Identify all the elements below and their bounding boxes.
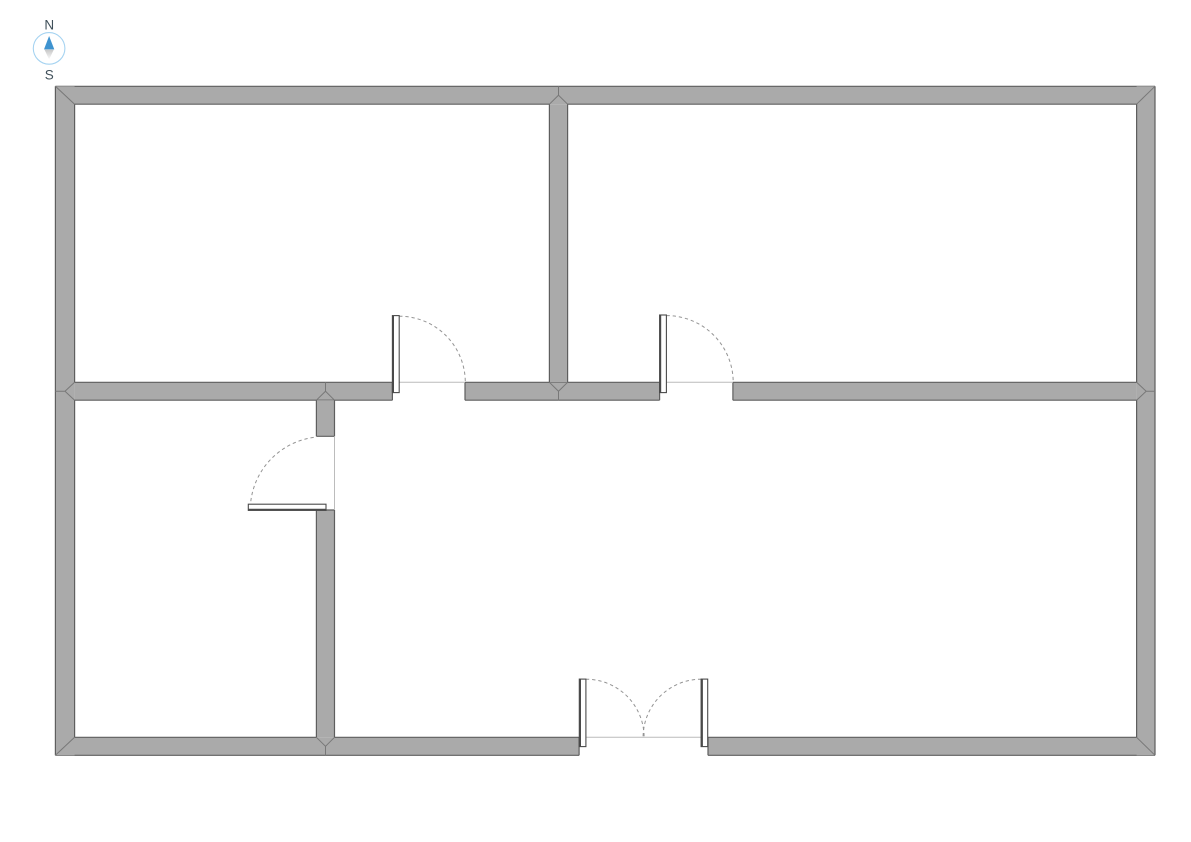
svg-text:N: N — [44, 17, 54, 32]
svg-text:S: S — [45, 67, 54, 82]
